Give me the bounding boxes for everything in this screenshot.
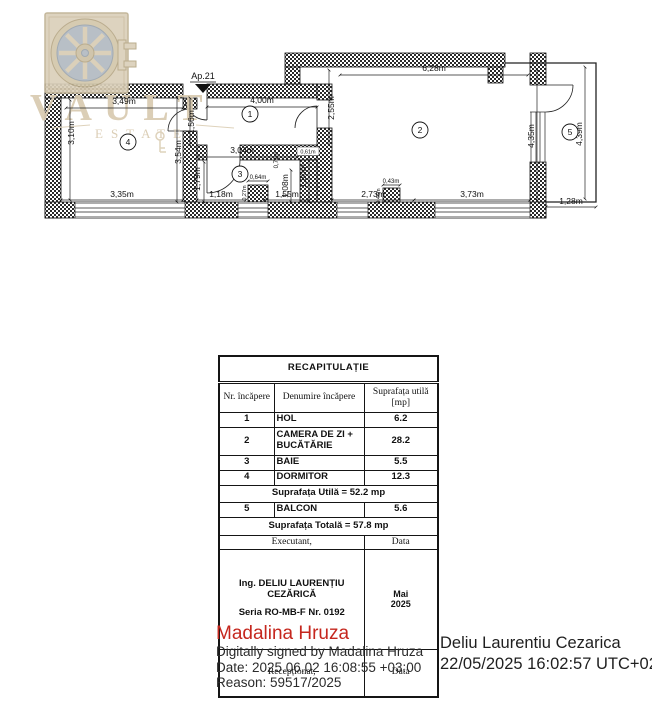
dim-label: 3,04m [230, 145, 254, 155]
signature-line1: Digitally signed by Madalina Hruza [216, 644, 423, 660]
table-title: RECAPITULAȚIE [219, 356, 438, 382]
svg-text:2: 2 [418, 125, 423, 135]
dim-label: 0,71m [274, 152, 280, 169]
suprafata-totala: Suprafața Totală = 57.8 mp [219, 517, 438, 535]
window-living-left [337, 202, 368, 218]
dim-label: 1,79m [192, 167, 202, 191]
entrance-text: Ap.21 [191, 71, 215, 81]
dim-label: 4,35m [526, 124, 536, 148]
col-header-nr: Nr. încăpere [219, 382, 274, 412]
room-marker-4: 4 [120, 134, 136, 150]
window-living-right [435, 202, 530, 218]
dim-label: 0,64m [250, 175, 267, 181]
dim-label: 3,54m [173, 140, 183, 164]
svg-text:5: 5 [568, 127, 573, 137]
dim-label: 1,56m [186, 110, 196, 134]
room-marker-2: 2 [412, 122, 428, 138]
watermark-sub: ESTATE [95, 126, 189, 141]
table-row: 3 BAIE 5.5 [219, 455, 438, 470]
balcony-door [546, 85, 573, 112]
dim-label: 1,08m [280, 174, 290, 198]
executant-name: Ing. DELIU LAURENȚIU CEZĂRICĂ [228, 579, 356, 601]
col-header-area: Suprafața utilă [mp] [364, 382, 438, 412]
dim-label: 3,10m [66, 121, 76, 145]
window-bedroom [75, 202, 185, 218]
table-row: 1 HOL 6.2 [219, 412, 438, 427]
suprafata-utila: Suprafața Utilă = 52.2 mp [219, 485, 438, 502]
dim-label: 3,73m [460, 189, 484, 199]
dim-label: 1,80m [298, 164, 308, 188]
doors [168, 85, 573, 193]
dim-label: 4,00m [250, 95, 274, 105]
signer-timestamp: 22/05/2025 16:02:57 UTC+02 [440, 654, 652, 675]
dim-label: 0,61m [300, 150, 316, 156]
room-marker-3: 3 [232, 166, 248, 182]
executant-seria: Seria RO-MB-F Nr. 0192 [222, 608, 362, 619]
signer-name: Deliu Laurentiu Cezarica [440, 633, 652, 654]
executant-header: Executant, [219, 535, 364, 549]
floor-plan-document: VAULT ESTATE [0, 0, 652, 720]
dim-label: 0,43m [383, 179, 400, 185]
dim-label: 6,28m [422, 63, 446, 73]
dim-label: 1,18m [209, 189, 233, 199]
dim-label: 0,27m [242, 185, 248, 201]
svg-text:1: 1 [248, 109, 253, 119]
signature-line3: Reason: 59517/2025 [216, 675, 423, 691]
table-row: 4 DORMITOR 12.3 [219, 470, 438, 485]
dim-label: 3,49m [112, 96, 136, 106]
room-marker-1: 1 [242, 106, 258, 122]
digital-signature-right: Deliu Laurentiu Cezarica 22/05/2025 16:0… [440, 633, 652, 675]
svg-text:3: 3 [238, 169, 243, 179]
floor-plan-drawing: VAULT ESTATE [0, 0, 652, 260]
dim-label: 2,55m [326, 96, 336, 120]
living-door [295, 106, 317, 128]
window-bath [238, 202, 268, 218]
dim-label: 1,28m [559, 196, 583, 206]
svg-text:4: 4 [126, 137, 131, 147]
signature-line2: Date: 2025.06.02 16:08:55 +03:00 [216, 660, 423, 676]
dim-label: 3,35m [110, 189, 134, 199]
vault-logo-icon [45, 13, 136, 93]
executant-date: Mai 2025 [384, 589, 418, 610]
signature-name: Madalina Hruza [216, 623, 423, 644]
room-marker-5: 5 [562, 124, 578, 140]
data-header: Data [364, 535, 438, 549]
table-row: 2 CAMERA DE ZI + BUCĂTĂRIE 28.2 [219, 427, 438, 455]
digital-signature-left: Madalina Hruza Digitally signed by Madal… [216, 623, 423, 691]
table-row: 5 BALCON 5.6 [219, 502, 438, 517]
dim-label: 0,46m [376, 188, 382, 204]
col-header-name: Denumire încăpere [274, 382, 364, 412]
